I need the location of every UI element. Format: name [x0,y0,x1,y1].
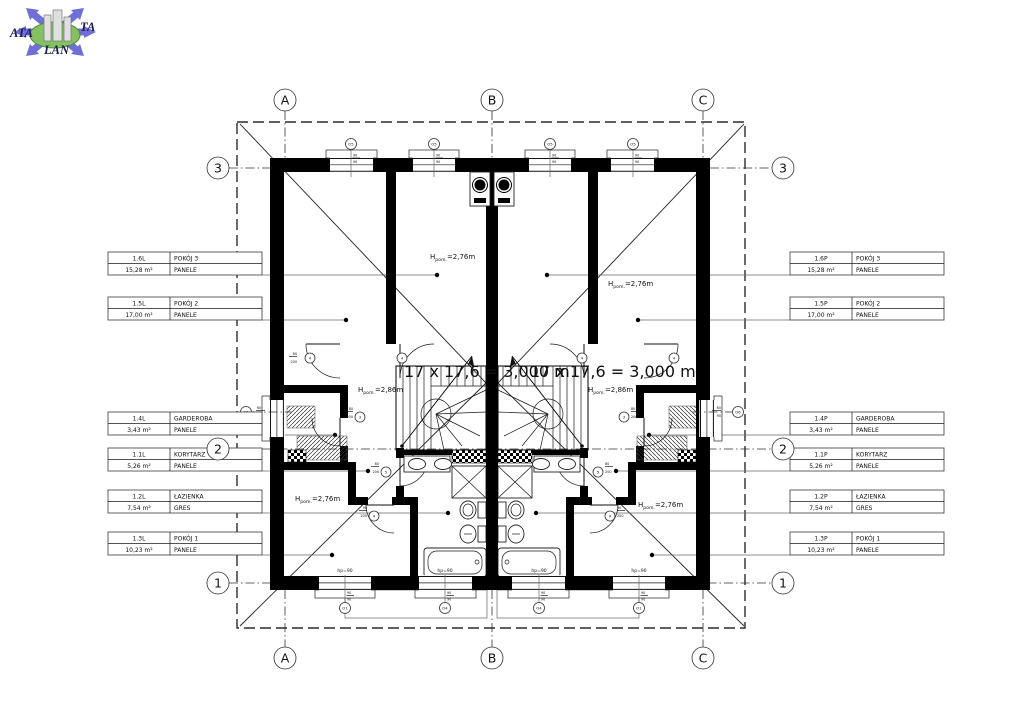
svg-text:ŁAZIENKA: ŁAZIENKA [855,494,886,501]
svg-text:Hpom.=2,76m: Hpom.=2,76m [295,495,340,505]
svg-text:GRES: GRES [856,505,873,512]
svg-text:3,43 m²: 3,43 m² [127,427,151,434]
svg-text:15,28 m²: 15,28 m² [125,267,153,274]
svg-text:POKÓJ 3: POKÓJ 3 [174,256,198,263]
svg-text:O5: O5 [431,142,437,147]
grid-bubble-2-left: 2 [207,438,229,460]
stair-note-right: 17 x 17,6 = 3,000 m [530,362,696,381]
svg-text:80: 80 [375,462,379,466]
svg-text:7,54 m²: 7,54 m² [127,505,151,512]
svg-text:O5: O5 [630,142,636,147]
svg-text:1.6L: 1.6L [133,256,147,263]
svg-text:7,54 m²: 7,54 m² [809,505,833,512]
svg-text:200: 200 [347,415,353,419]
svg-text:KORYTARZ: KORYTARZ [856,452,887,459]
room-label: 1.6P POKÓJ 3 15,28 m² PANELE [790,252,944,275]
floor-plan-page: O5 90 90 O5 90 90 O5 90 90 O5 90 90 [0,0,1024,725]
svg-text:POKÓJ 1: POKÓJ 1 [856,536,880,543]
svg-text:POKÓJ 2: POKÓJ 2 [174,301,198,308]
svg-text:17,00 m²: 17,00 m² [125,312,153,319]
grid-bubble-2-right: 2 [772,438,794,460]
svg-text:B: B [488,93,497,108]
svg-text:90: 90 [617,506,621,510]
logo-text-ata: ATA [9,26,33,40]
svg-text:10,23 m²: 10,23 m² [125,547,153,554]
door-marker: 5 80 200 [371,462,391,477]
svg-text:hp=90: hp=90 [337,568,352,574]
grid-bubble-c-top: C [692,89,714,111]
svg-text:hp=90: hp=90 [531,568,546,574]
svg-text:80: 80 [349,407,353,411]
svg-text:90: 90 [552,154,556,158]
svg-text:2: 2 [779,442,787,457]
grid-bubble-a-bottom: A [274,647,296,669]
svg-text:O6: O6 [735,410,741,415]
svg-text:90: 90 [436,160,440,164]
svg-text:O1: O1 [636,606,642,611]
room-label: 1.3P POKÓJ 1 10,23 m² PANELE [790,532,944,555]
svg-text:Hpom.=2,76m: Hpom.=2,76m [608,280,653,290]
svg-text:90: 90 [641,597,645,601]
svg-text:A: A [281,93,290,108]
svg-text:POKÓJ 3: POKÓJ 3 [856,256,880,263]
svg-text:2: 2 [214,442,222,457]
svg-text:1.4L: 1.4L [133,416,147,423]
svg-text:1.1L: 1.1L [133,452,147,459]
door-marker: 5 80 200 [593,462,613,477]
svg-text:5,26 m²: 5,26 m² [809,463,833,470]
svg-text:Hpom.=2,86m: Hpom.=2,86m [358,386,403,396]
svg-text:3,43 m²: 3,43 m² [809,427,833,434]
svg-text:10,23 m²: 10,23 m² [807,547,835,554]
svg-text:1.2L: 1.2L [133,494,147,501]
svg-text:O5: O5 [348,142,354,147]
svg-text:O5: O5 [547,142,553,147]
svg-text:PANELE: PANELE [856,463,879,470]
svg-text:200: 200 [361,514,367,518]
svg-text:PANELE: PANELE [174,427,197,434]
svg-text:90: 90 [363,506,367,510]
svg-text:15,28 m²: 15,28 m² [807,267,835,274]
svg-text:C: C [699,651,708,666]
svg-text:KORYTARZ: KORYTARZ [174,452,205,459]
company-logo: ATA TA LAN [9,8,96,57]
svg-text:POKÓJ 2: POKÓJ 2 [856,301,880,308]
svg-text:C: C [699,93,708,108]
grid-bubble-b-top: B [481,89,503,111]
svg-text:90: 90 [541,597,545,601]
room-labels-right: 1.6P POKÓJ 3 15,28 m² PANELE 1.5P POKÓJ … [790,252,944,555]
svg-text:PANELE: PANELE [856,547,879,554]
grid-bubble-a-top: A [274,89,296,111]
svg-text:90: 90 [353,160,357,164]
svg-text:GARDEROBA: GARDEROBA [856,416,895,423]
svg-text:A: A [281,651,290,666]
svg-text:1.5L: 1.5L [133,301,147,308]
svg-text:90: 90 [436,154,440,158]
svg-text:90: 90 [717,414,721,418]
room-label: 1.4P GARDEROBA 3,43 m² PANELE [790,412,944,435]
svg-text:1: 1 [779,576,787,591]
grid-bubble-3-left: 3 [207,157,229,179]
svg-text:90: 90 [353,154,357,158]
svg-text:1.6P: 1.6P [814,256,828,263]
grid-bubble-c-bottom: C [692,647,714,669]
svg-text:Hpom.=2,76m: Hpom.=2,76m [430,253,475,263]
svg-text:O4: O4 [442,606,448,611]
door-marker: 4 90 200 [359,506,379,521]
logo-buildings [44,10,71,41]
svg-text:PANELE: PANELE [174,267,197,274]
room-label: 1.5P POKÓJ 2 17,00 m² PANELE [790,297,944,320]
svg-text:Hpom.=2,86m: Hpom.=2,86m [588,386,633,396]
svg-text:O4: O4 [536,606,542,611]
svg-text:B: B [488,651,497,666]
svg-text:60: 60 [717,406,721,410]
room-label: 1.2L ŁAZIENKA 7,54 m² GRES [108,490,262,513]
svg-text:200: 200 [373,470,379,474]
grid-bubble-1-left: 1 [207,572,229,594]
room-label: 1.5L POKÓJ 2 17,00 m² PANELE [108,297,262,320]
svg-text:PANELE: PANELE [174,547,197,554]
svg-text:90: 90 [447,591,451,595]
svg-text:PANELE: PANELE [856,267,879,274]
svg-text:1.4P: 1.4P [814,416,828,423]
svg-text:PANELE: PANELE [856,427,879,434]
svg-text:200: 200 [291,360,297,364]
svg-text:GARDEROBA: GARDEROBA [174,416,213,423]
svg-text:80: 80 [293,352,297,356]
svg-text:80: 80 [605,462,609,466]
svg-text:GRES: GRES [174,505,191,512]
svg-text:90: 90 [347,597,351,601]
room-label: 1.6L POKÓJ 3 15,28 m² PANELE [108,252,262,275]
door-marker: 4 90 200 [605,506,625,521]
svg-text:17,00 m²: 17,00 m² [807,312,835,319]
svg-text:90: 90 [635,154,639,158]
svg-text:PANELE: PANELE [174,312,197,319]
svg-text:hp=90: hp=90 [631,568,646,574]
svg-text:90: 90 [347,591,351,595]
svg-text:PANELE: PANELE [174,463,197,470]
svg-text:90: 90 [635,160,639,164]
grid-bubble-b-bottom: B [481,647,503,669]
logo-text-ta: TA [80,20,95,34]
svg-text:60: 60 [257,406,261,410]
svg-text:1.5P: 1.5P [814,301,828,308]
logo-text-lan: LAN [43,43,70,57]
svg-text:1.1P: 1.1P [814,452,828,459]
svg-text:1.3P: 1.3P [814,536,828,543]
room-label: 1.1L KORYTARZ 5,26 m² PANELE [108,448,262,471]
svg-text:90: 90 [447,597,451,601]
svg-text:3: 3 [214,161,222,176]
room-labels-left: 1.6L POKÓJ 3 15,28 m² PANELE 1.5L POKÓJ … [108,252,262,555]
svg-text:1: 1 [214,576,222,591]
grid-bubble-1-right: 1 [772,572,794,594]
svg-text:POKÓJ 1: POKÓJ 1 [174,536,198,543]
room-label: 1.4L GARDEROBA 3,43 m² PANELE [108,412,262,435]
svg-text:80: 80 [631,407,635,411]
room-label: 1.2P ŁAZIENKA 7,54 m² GRES [790,490,944,513]
room-label: 1.3L POKÓJ 1 10,23 m² PANELE [108,532,262,555]
grid-bubble-3-right: 3 [772,157,794,179]
room-label: 1.1P KORYTARZ 5,26 m² PANELE [790,448,944,471]
svg-text:5,26 m²: 5,26 m² [127,463,151,470]
svg-text:hp=90: hp=90 [437,568,452,574]
svg-text:90: 90 [552,160,556,164]
svg-text:1.2P: 1.2P [814,494,828,501]
svg-text:1.3L: 1.3L [133,536,147,543]
svg-text:3: 3 [779,161,787,176]
svg-text:ŁAZIENKA: ŁAZIENKA [173,494,204,501]
svg-text:90: 90 [641,591,645,595]
svg-text:PANELE: PANELE [856,312,879,319]
svg-text:200: 200 [617,514,623,518]
svg-text:90: 90 [541,591,545,595]
door-marker: 4 80 200 [289,352,315,364]
svg-text:O1: O1 [342,606,348,611]
door-marker: 3 80 200 [345,407,365,422]
svg-text:200: 200 [631,415,637,419]
svg-text:Hpom.=2,76m: Hpom.=2,76m [638,501,683,511]
svg-text:200: 200 [605,470,611,474]
